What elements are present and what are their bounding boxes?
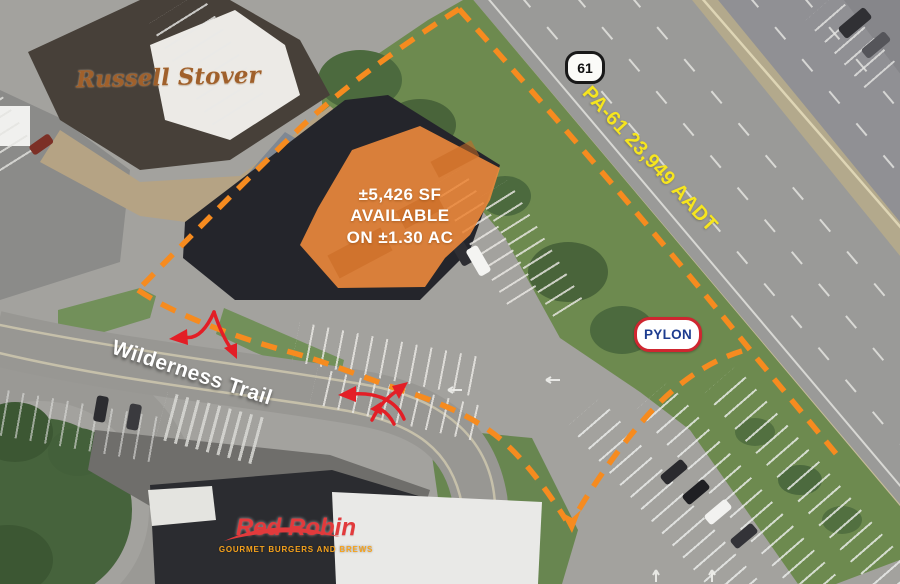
red-robin-swoosh-icon	[206, 514, 356, 544]
access-arrow-west	[169, 312, 237, 359]
route-61-shield: 61	[565, 51, 605, 84]
availability-callout: ±5,426 SF AVAILABLE ON ±1.30 AC	[316, 184, 484, 248]
russell-stover-label: Russell Stover	[76, 62, 261, 94]
boundary-trail	[138, 290, 566, 520]
availability-status: AVAILABLE	[316, 205, 484, 226]
pavement-arrows	[448, 377, 715, 582]
aerial-site-plan: Russell Stover ±5,426 SF AVAILABLE ON ±1…	[0, 0, 900, 584]
boundary-diagonal	[572, 351, 742, 522]
access-arrow-east	[338, 382, 408, 424]
pylon-sign-badge: PYLON	[634, 317, 702, 352]
boundary-highway	[459, 9, 838, 456]
availability-acreage: ON ±1.30 AC	[316, 227, 484, 248]
availability-size: ±5,426 SF	[316, 184, 484, 205]
red-robin-logo: Red Robin GOURMET BURGERS AND BREWS	[206, 514, 386, 554]
red-robin-tagline: GOURMET BURGERS AND BREWS	[206, 545, 386, 554]
